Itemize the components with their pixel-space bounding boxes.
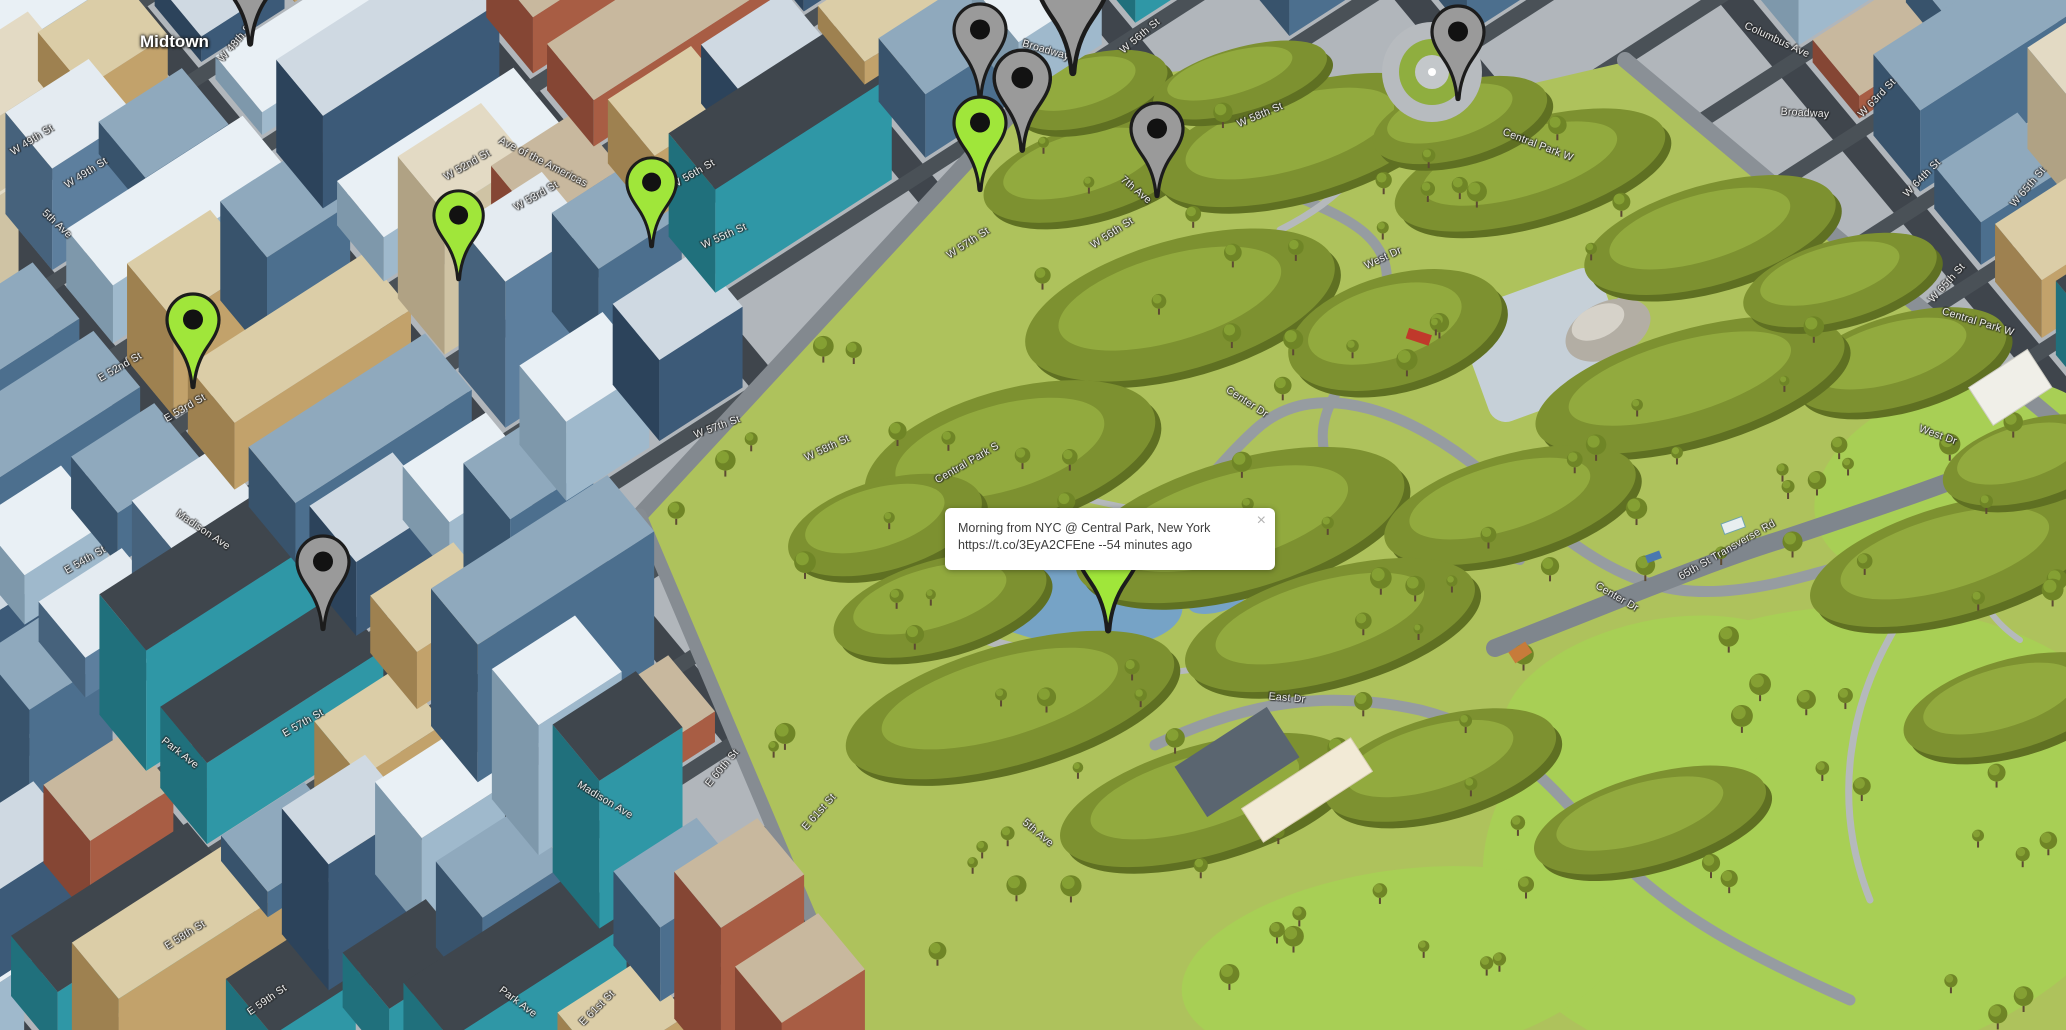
- popup-close-icon[interactable]: ×: [1257, 513, 1266, 529]
- tweet-pin-gray[interactable]: [295, 534, 351, 634]
- tweet-popup: Morning from NYC @ Central Park, New Yor…: [945, 508, 1275, 570]
- tweet-pin-gray[interactable]: [1129, 101, 1185, 201]
- tweet-pin-green[interactable]: [432, 189, 485, 284]
- tweet-text: Morning from NYC @ Central Park, New Yor…: [958, 520, 1245, 537]
- street-label: Broadway: [1780, 106, 1829, 121]
- tweet-pin-gray[interactable]: [218, 0, 282, 50]
- tweet-link-and-time: https://t.co/3EyA2CFEne --54 minutes ago: [958, 537, 1245, 554]
- tweet-pin-gray[interactable]: [1430, 4, 1486, 104]
- tweet-pin-green[interactable]: [625, 156, 678, 251]
- district-label-midtown: Midtown: [140, 32, 209, 52]
- tweet-pin-green[interactable]: [952, 95, 1008, 195]
- tweet-pin-green[interactable]: [165, 292, 221, 392]
- map-canvas[interactable]: Midtown W 48th StW 49th StW 49th St5th A…: [0, 0, 2066, 1030]
